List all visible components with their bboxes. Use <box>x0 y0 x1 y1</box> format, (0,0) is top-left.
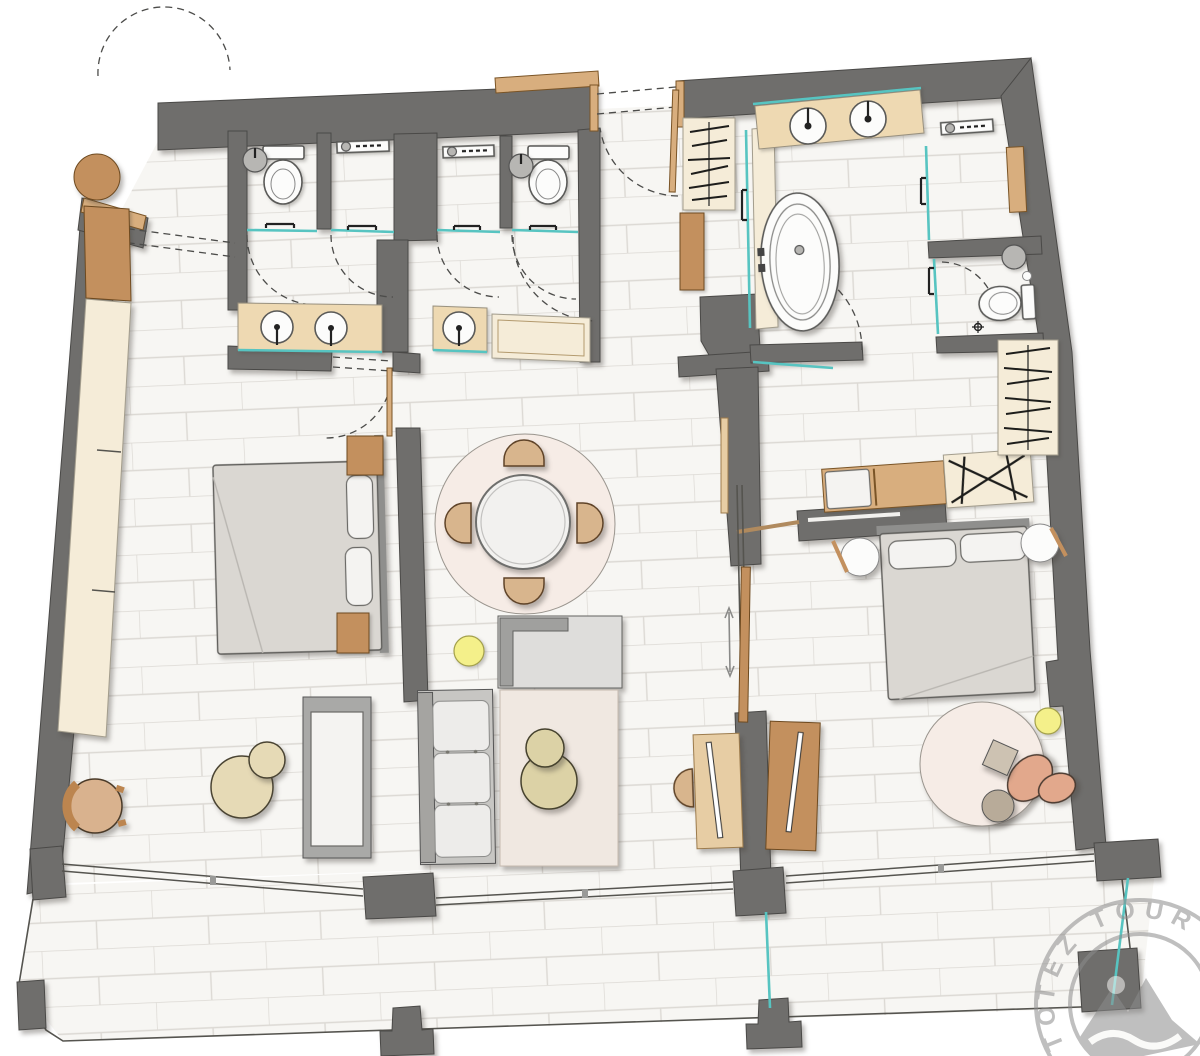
daybed-bench <box>303 697 371 858</box>
pier-southeast <box>1094 839 1161 881</box>
bath2-divider-wall <box>500 136 512 228</box>
pouf <box>249 742 285 778</box>
entry-dash-1 <box>597 87 676 94</box>
pier-mid-right <box>733 867 786 916</box>
toilet <box>528 146 569 204</box>
side-table <box>74 154 120 200</box>
bench <box>492 314 590 362</box>
luggage-rack <box>943 449 1033 508</box>
door-leaf <box>387 368 392 436</box>
nightstand <box>347 436 383 475</box>
pillow <box>960 531 1026 562</box>
tv-cabinet <box>498 616 622 688</box>
toilet-tank <box>263 146 304 159</box>
toilet <box>263 146 304 204</box>
sofa <box>417 689 495 864</box>
side-cabinet <box>84 206 131 301</box>
round-dining-table <box>476 475 570 569</box>
stool <box>982 790 1014 822</box>
vanity-counter <box>238 303 382 352</box>
masterbath-south-wall <box>750 342 863 363</box>
drain-icon <box>795 245 804 254</box>
rail-pier-1 <box>17 980 46 1030</box>
floor-lamp <box>454 636 484 666</box>
bath1-divider-wall <box>317 133 331 229</box>
pier-mid-left <box>363 873 436 919</box>
outside-arc <box>98 7 230 76</box>
floor-plan-canvas: TEZ TOUR TEZ TOUR TEZ TOUR TEZ <box>0 0 1200 1056</box>
shower-head-bar <box>337 140 389 153</box>
pier-left <box>30 846 66 900</box>
toilet <box>978 285 1036 322</box>
shower-bench <box>1006 147 1026 213</box>
bench <box>822 461 947 512</box>
vanity-counter <box>433 306 487 352</box>
toilet-bowl-inner <box>536 169 560 199</box>
desk-bedroom-side <box>766 721 820 851</box>
floor-lamp <box>1035 708 1061 734</box>
bedroom1-top-wall-right <box>393 352 420 373</box>
nightstand <box>337 613 369 653</box>
wardrobe-with-hangers <box>998 340 1058 455</box>
glass-partition <box>247 230 317 231</box>
pillow <box>345 547 373 606</box>
soap-icon <box>1023 272 1032 281</box>
toilet-bowl-inner <box>271 169 295 199</box>
shower-head-bar <box>443 145 494 158</box>
console-panel <box>680 213 704 290</box>
double-bed <box>876 518 1038 700</box>
coffee-table <box>526 729 564 767</box>
entry-jamb-left <box>590 85 598 131</box>
pillow <box>888 538 956 569</box>
pillow <box>346 475 374 539</box>
wall-trim <box>721 418 728 513</box>
floor-plan-drawing: TEZ TOUR TEZ TOUR TEZ TOUR TEZ <box>0 0 1200 1056</box>
entry-wardrobe <box>683 118 735 210</box>
bath-mid-wall-upper <box>394 133 437 241</box>
toilet-tank <box>528 146 569 159</box>
toilet-tank <box>1021 285 1036 320</box>
washbasin-icon <box>1002 245 1026 269</box>
